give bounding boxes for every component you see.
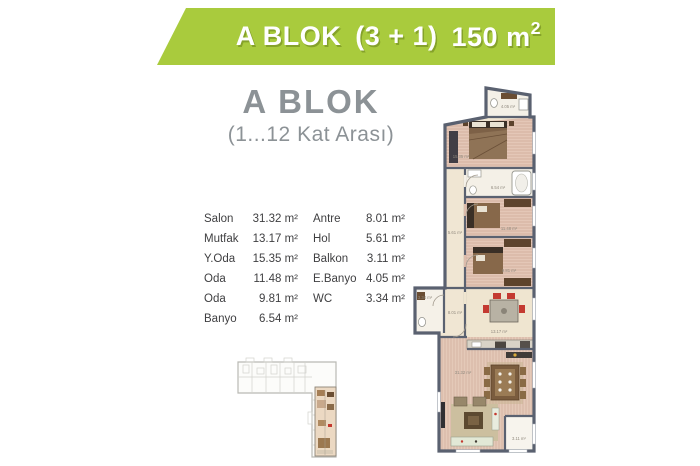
table-row: Banyo6.54 m²: [204, 309, 298, 329]
table-row: Hol5.61 m²: [313, 229, 405, 249]
room-area: 31.32 m²: [253, 209, 298, 229]
plan-label: 3.34 m²: [418, 295, 433, 300]
plan-label: 3.11 m²: [512, 436, 526, 441]
table-row: Salon31.32 m²: [204, 209, 298, 229]
room-name: Salon: [204, 209, 233, 229]
room-area: 13.17 m²: [253, 229, 298, 249]
table-row: Antre8.01 m²: [313, 209, 405, 229]
banner: A BLOK (3 + 1) 150 m2: [157, 8, 555, 65]
room-name: Balkon: [313, 249, 348, 269]
plan-label: 31.32 m²: [455, 370, 472, 375]
room-area: 11.48 m²: [253, 269, 298, 289]
table-row: Mutfak13.17 m²: [204, 229, 298, 249]
table-row: Oda9.81 m²: [204, 289, 298, 309]
floor-plan: 4.05 m² 15.35 m² 6.54 m² 5.61 m² 11.48 m…: [408, 83, 540, 459]
highlighted-unit: [315, 387, 336, 456]
room-name: Oda: [204, 269, 226, 289]
room-column-right: Antre8.01 m² Hol5.61 m² Balkon3.11 m² E.…: [313, 209, 405, 329]
room-area: 9.81 m²: [259, 289, 298, 309]
room-name: Antre: [313, 209, 341, 229]
banner-area-label: 150 m2: [452, 20, 541, 53]
table-row: WC3.34 m²: [313, 289, 405, 309]
room-name: WC: [313, 289, 332, 309]
room-area: 3.11 m²: [367, 249, 405, 269]
room-area: 3.34 m²: [366, 289, 405, 309]
table-row: Oda11.48 m²: [204, 269, 298, 289]
room-area-table: Salon31.32 m² Mutfak13.17 m² Y.Oda15.35 …: [204, 209, 405, 329]
room-name: Hol: [313, 229, 330, 249]
room-name: Mutfak: [204, 229, 239, 249]
banner-area-sup: 2: [531, 18, 541, 38]
plan-label: 6.54 m²: [491, 185, 506, 190]
room-area: 6.54 m²: [259, 309, 298, 329]
plan-label: 8.01 m²: [448, 310, 463, 315]
plan-label: 15.35 m²: [453, 154, 470, 159]
plan-label: 11.48 m²: [501, 226, 518, 231]
room-area: 5.61 m²: [366, 229, 405, 249]
plan-label: 5.61 m²: [448, 230, 463, 235]
banner-type-label: (3 + 1): [355, 21, 437, 52]
room-name: Y.Oda: [204, 249, 235, 269]
key-plan: [228, 356, 340, 466]
room-area: 8.01 m²: [366, 209, 405, 229]
plan-label: 9.81 m²: [502, 268, 517, 273]
page: A BLOK (3 + 1) 150 m2 A BLOK (1...12 Kat…: [0, 0, 700, 466]
room-name: Banyo: [204, 309, 237, 329]
room-name: E.Banyo: [313, 269, 356, 289]
room-name: Oda: [204, 289, 226, 309]
banner-block-label: A BLOK: [236, 21, 342, 52]
plan-label: 4.05 m²: [501, 104, 516, 109]
table-row: E.Banyo4.05 m²: [313, 269, 405, 289]
room-area: 4.05 m²: [366, 269, 405, 289]
plan-label: 13.17 m²: [491, 329, 508, 334]
table-row: Y.Oda15.35 m²: [204, 249, 298, 269]
room-column-left: Salon31.32 m² Mutfak13.17 m² Y.Oda15.35 …: [204, 209, 298, 329]
table-row: Balkon3.11 m²: [313, 249, 405, 269]
room-area: 15.35 m²: [253, 249, 298, 269]
